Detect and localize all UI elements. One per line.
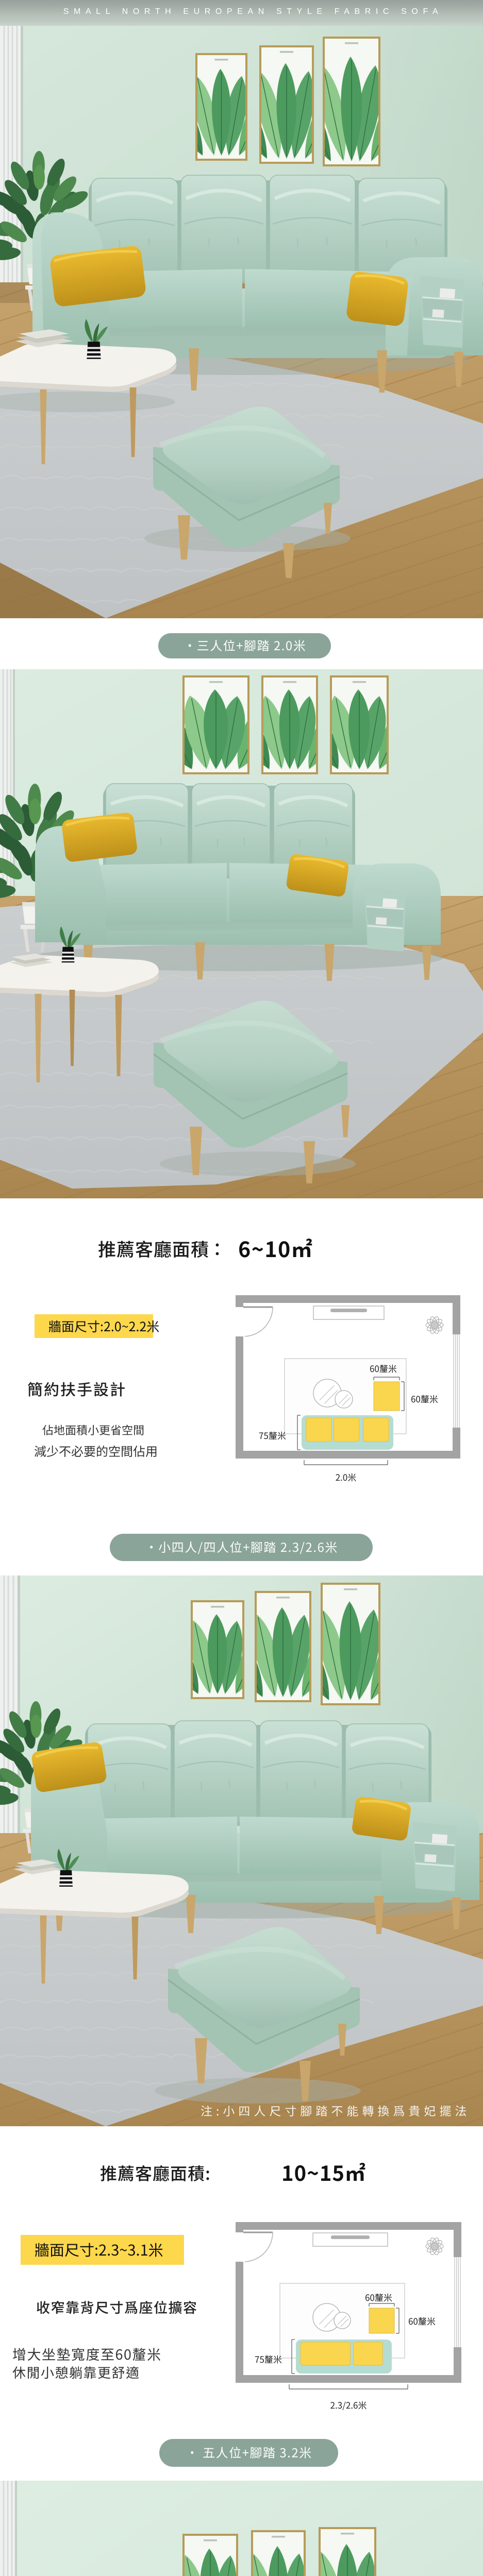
- svg-text:SMALL NORTH EUROPEAN STYLE FAB: SMALL NORTH EUROPEAN STYLE FABRIC SOFA: [63, 7, 443, 16]
